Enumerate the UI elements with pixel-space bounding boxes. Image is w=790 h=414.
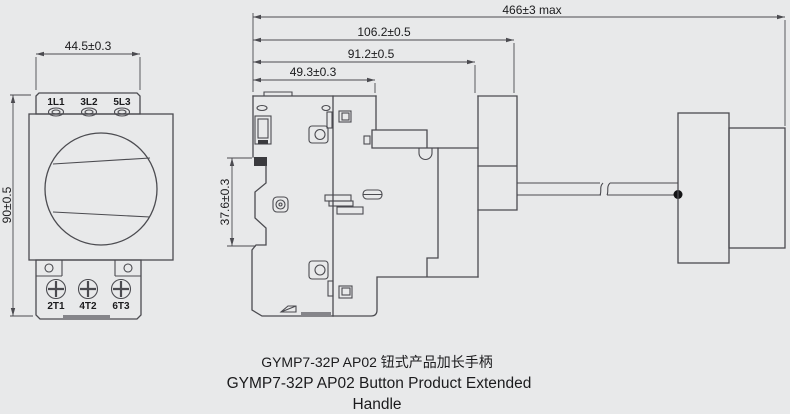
caption-line-en2: Handle [352,396,401,413]
dimension-front-height: 90±0.5 [0,95,33,316]
din-latch-notch [254,157,267,166]
terminal-label-top-3: 5L3 [113,97,131,108]
dimension-din-rail: 37.6±0.3 [218,158,256,246]
bottom-foot-details [281,306,331,316]
front-view: 1L1 3L2 5L3 2T1 4T2 6T3 [29,93,173,319]
dim-label-49: 49.3±0.3 [290,65,337,79]
dim-label-91: 91.2±0.5 [348,47,395,61]
caption-line-cn: GYMP7-32P AP02 钮式产品加长手柄 [261,354,493,370]
side-front-lower [333,148,478,316]
shaft-housing-block [478,96,517,210]
terminal-label-top-2: 3L2 [80,97,98,108]
din-clip [255,116,271,144]
mount-boss-icon [309,111,351,143]
u-notch [419,148,432,160]
front-body [29,114,173,260]
hole-icon [322,106,330,111]
terminal-label-bottom-2: 4T2 [79,301,97,312]
handle-plate [678,113,729,263]
aux-hole-icon [45,264,53,272]
phillips-screw-icon [47,280,131,299]
caption: GYMP7-32P AP02 钮式产品加长手柄 GYMP7-32P AP02 B… [227,354,532,413]
hole-icon [257,106,267,111]
side-view [252,92,785,316]
dimension-91: 91.2±0.5 [253,47,475,93]
dim-label-106: 106.2±0.5 [357,25,411,39]
terminal-label-top-1: 1L1 [47,97,65,108]
dim-label-din-rail: 37.6±0.3 [218,178,232,225]
technical-drawing-page: 1L1 3L2 5L3 2T1 4T2 6T3 [0,0,790,414]
break-symbol-icon [600,183,610,195]
screw-hole-icon [273,197,288,212]
handle-knob [729,128,785,248]
dimension-front-width: 44.5±0.3 [36,39,140,90]
dimension-49: 49.3±0.3 [253,65,375,93]
terminal-label-bottom-3: 6T3 [112,301,130,312]
side-front-step [372,96,478,148]
dim-label-front-height: 90±0.5 [0,186,14,223]
extension-rod [517,183,683,199]
aux-hole-icon [124,264,132,272]
caption-line-en: GYMP7-32P AP02 Button Product Extended [227,375,532,392]
slot-screw-icon [49,108,130,116]
dim-label-front-width: 44.5±0.3 [65,39,112,53]
front-dial [45,133,157,245]
din-rail-profile [252,166,333,316]
dim-label-overall: 466±3 max [502,3,561,17]
terminal-label-bottom-1: 2T1 [47,301,65,312]
drawing-canvas: 1L1 3L2 5L3 2T1 4T2 6T3 [0,0,790,414]
mount-boss-icon [309,261,352,298]
